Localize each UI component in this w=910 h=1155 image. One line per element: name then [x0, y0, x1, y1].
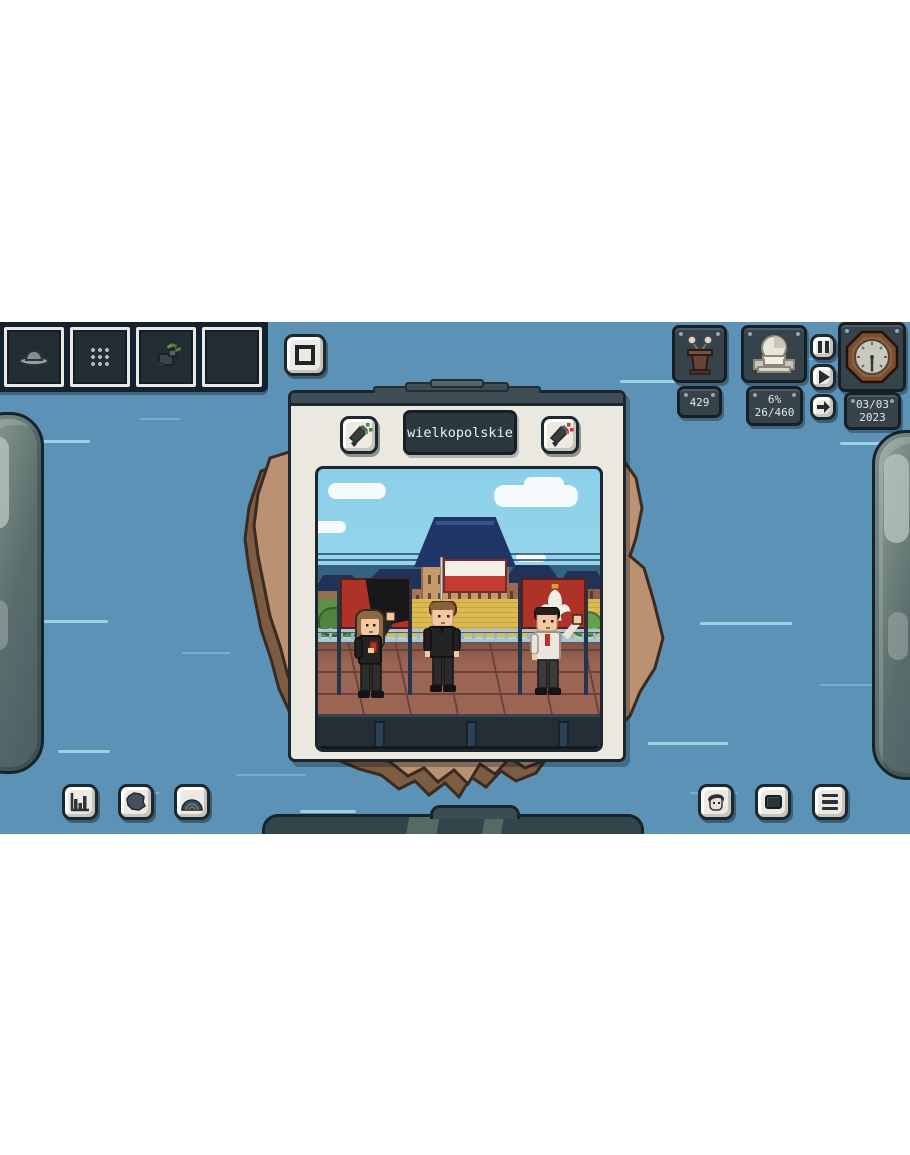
sejm-dome-icon — [750, 333, 798, 375]
parliament-label: 6%26/460 — [746, 386, 803, 426]
skip-arrow-icon — [815, 399, 831, 415]
letterbox-bottom — [0, 834, 910, 1155]
podium-count: 429 — [690, 396, 710, 409]
character-candidate — [521, 607, 583, 701]
rally-scene — [315, 466, 603, 752]
letterbox-top — [0, 0, 910, 322]
water-streak — [182, 652, 230, 654]
character-button[interactable] — [698, 784, 734, 820]
podium-count-label: 429 — [677, 386, 722, 418]
skip-button[interactable] — [810, 394, 836, 420]
bar-chart-icon — [69, 791, 91, 813]
cloud — [315, 521, 346, 533]
pause-icon — [818, 341, 829, 353]
grid-icon — [90, 347, 110, 367]
stage-shadow — [318, 746, 600, 752]
panel-top-bar — [291, 393, 623, 406]
inventory-slot-4[interactable] — [202, 327, 262, 387]
tv-button[interactable] — [755, 784, 791, 820]
play-button[interactable] — [810, 364, 836, 390]
frame-icon — [295, 345, 315, 365]
pause-button[interactable] — [810, 334, 836, 360]
water-streak — [36, 620, 108, 623]
boundary-stone-right — [872, 430, 910, 780]
clock-icon — [845, 330, 899, 384]
clock-panel[interactable] — [838, 322, 906, 392]
bottom-rock — [262, 814, 644, 834]
frame-button[interactable] — [284, 334, 326, 376]
date-label: 03/032023 — [844, 392, 901, 430]
water-streak — [58, 750, 110, 753]
plant-icon — [151, 342, 181, 372]
water-streak — [820, 684, 880, 686]
region-panel: wielkopolskie — [288, 390, 626, 762]
water-streak — [700, 622, 792, 625]
menu-icon — [822, 794, 838, 811]
parliament-values: 6%26/460 — [755, 393, 795, 419]
megaphone-icon — [345, 421, 373, 449]
campaign-positive-button[interactable] — [340, 416, 378, 454]
boundary-stone-left — [0, 412, 44, 774]
stage-skirt — [318, 714, 600, 752]
portrait-icon — [704, 790, 728, 814]
hemicycle-icon — [180, 792, 204, 812]
tv-icon — [765, 795, 782, 809]
roof-highlight — [436, 521, 494, 525]
game-viewport[interactable]: 429 6%26/460 — [0, 322, 910, 834]
parliament-panel[interactable] — [741, 325, 807, 383]
poland-silhouette-icon — [124, 790, 148, 814]
character-activist — [342, 606, 398, 706]
megaphone-icon — [546, 421, 574, 449]
character-leader — [414, 601, 470, 697]
play-icon — [819, 370, 830, 384]
inventory-slot-2[interactable] — [70, 327, 130, 387]
water-streak — [140, 418, 180, 420]
polish-flag — [443, 559, 507, 593]
podium-icon — [680, 332, 720, 376]
date-values: 03/032023 — [856, 398, 889, 424]
cloud — [524, 477, 564, 491]
podium-panel[interactable] — [672, 325, 727, 383]
region-title: wielkopolskie — [407, 425, 513, 441]
parliament-view-button[interactable] — [174, 784, 210, 820]
inventory-slot-3[interactable] — [136, 327, 196, 387]
inventory-toolbar — [0, 322, 268, 392]
region-title-box: wielkopolskie — [403, 410, 517, 455]
map-button[interactable] — [118, 784, 154, 820]
hat-icon — [17, 345, 51, 369]
menu-button[interactable] — [812, 784, 848, 820]
cloud — [328, 483, 386, 499]
inventory-slot-1[interactable] — [4, 327, 64, 387]
campaign-negative-button[interactable] — [541, 416, 579, 454]
stats-button[interactable] — [62, 784, 98, 820]
